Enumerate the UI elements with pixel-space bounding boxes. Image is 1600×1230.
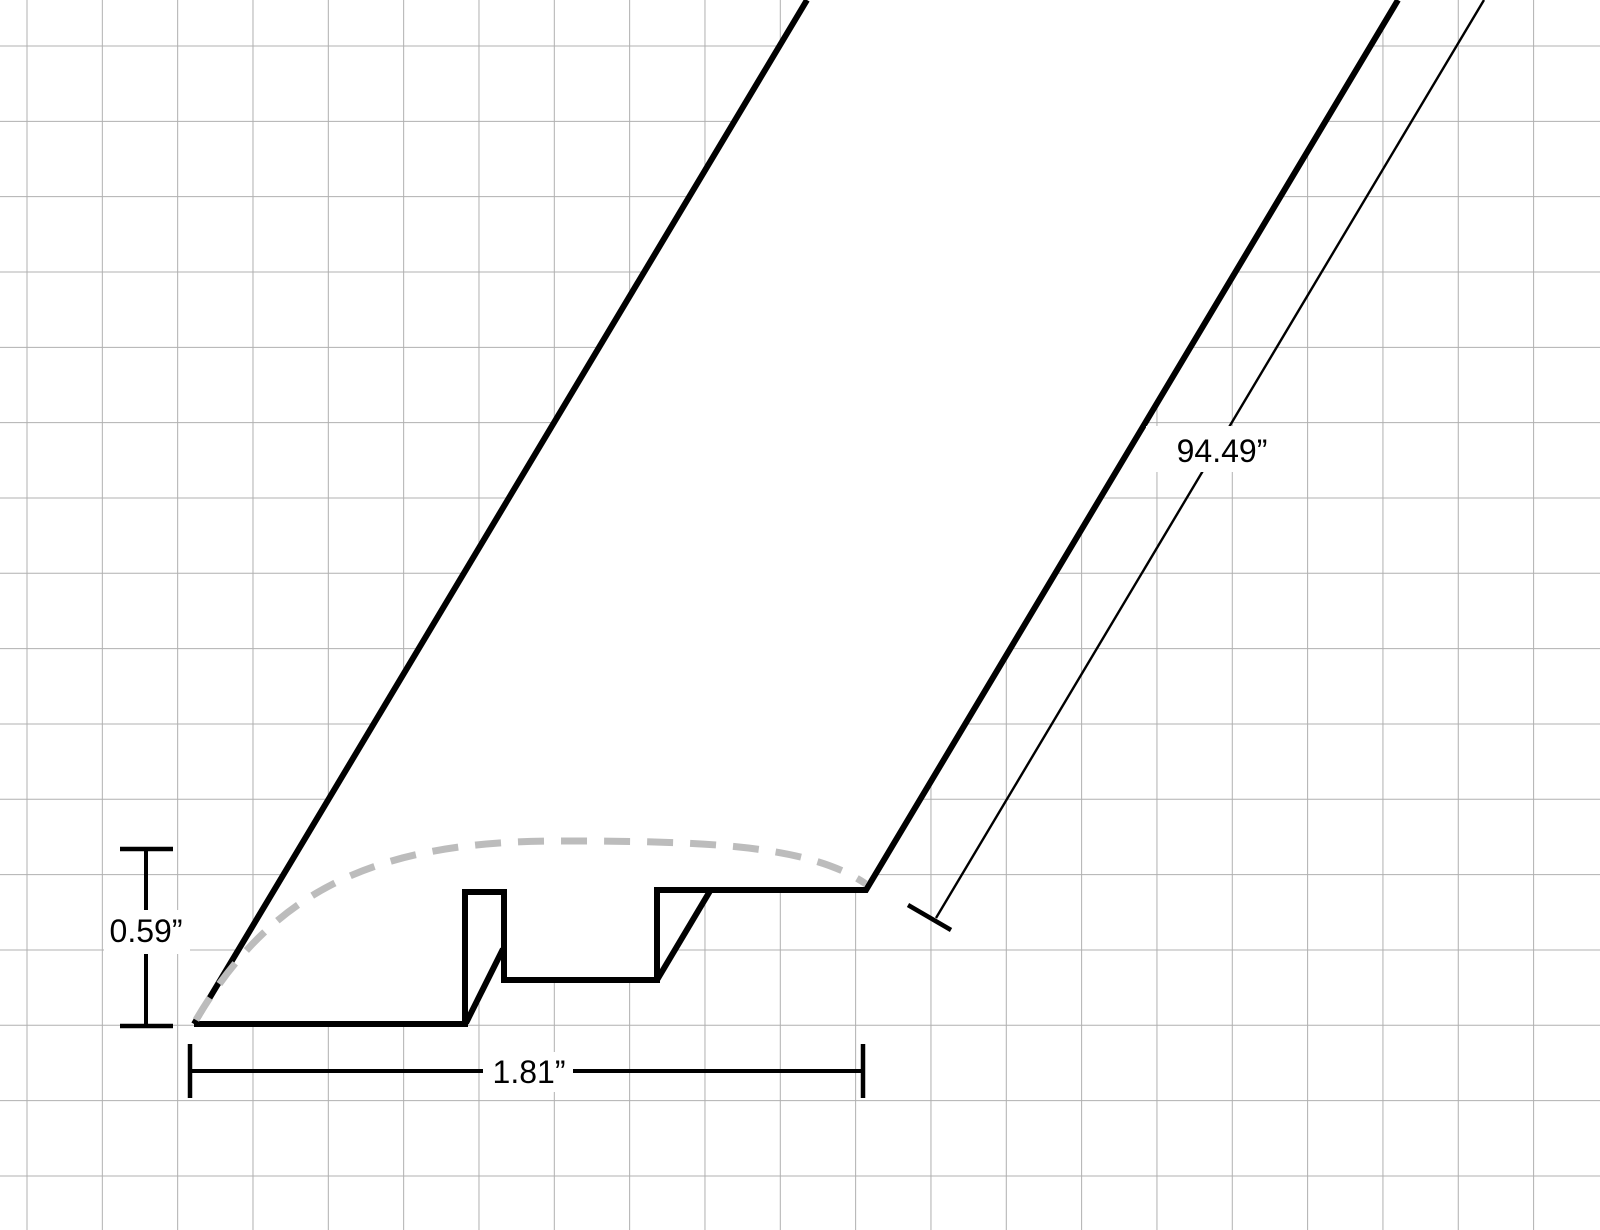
dim-length-label: 94.49”: [1177, 433, 1268, 469]
dim-height-label: 0.59”: [110, 913, 183, 949]
dim-width-label: 1.81”: [493, 1054, 566, 1090]
molding-profile-drawing: 0.59” 1.81” 94.49”: [0, 0, 1600, 1230]
technical-drawing-page: 0.59” 1.81” 94.49”: [0, 0, 1600, 1230]
